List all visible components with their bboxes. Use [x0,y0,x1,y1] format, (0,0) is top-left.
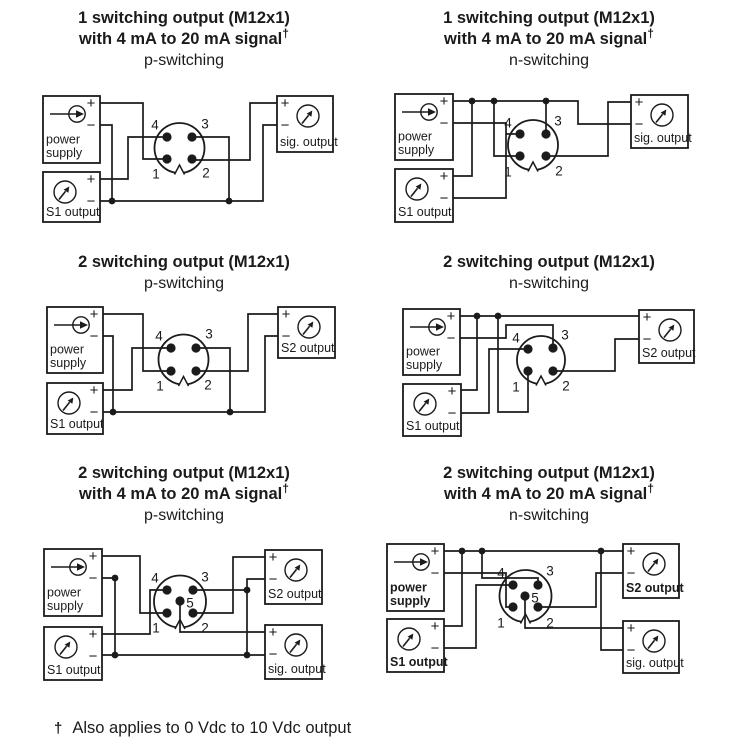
sig-output-box: +−sig. output [623,620,684,673]
box-label: sig. output [280,135,338,149]
pin-1-dot [166,366,175,375]
title-2-switching-signal-p: 2 switching output (M12x1)with 4 mA to 2… [1,463,367,526]
pin-4-dot [162,585,171,594]
pin-3-label: 3 [546,564,554,579]
pin-2-label: 2 [562,379,570,394]
s1-output-box: +−S1 output [43,171,100,222]
pin-2-dot [541,151,550,160]
junction-dot [244,652,251,659]
box-label: power [398,130,432,144]
title-line: 2 switching output (M12x1) [366,252,731,273]
wire [102,578,115,655]
box-label: supply [398,143,435,157]
junction-dot [109,198,116,205]
terminal-plus: + [431,618,440,635]
junction-dot [112,652,119,659]
power-supply-box: +−powersupply [403,308,460,375]
title-2-switching-signal-n: 2 switching output (M12x1)with 4 mA to 2… [366,463,731,526]
terminal-plus: + [89,548,98,565]
pin-3-dot [541,129,550,138]
junction-dot [598,548,605,555]
terminal-plus: + [627,620,636,637]
pin-5-label: 5 [186,596,194,611]
diagram-2-switching-signal-p: 43125+−powersupply+−S1 output+−S2 output… [44,548,326,680]
box-label: supply [50,356,87,370]
terminal-minus: − [269,571,278,588]
terminal-plus: + [87,95,96,112]
pin-5-dot [175,596,184,605]
junction-dot [459,548,466,555]
title-1-switching-signal-p: 1 switching output (M12x1)with 4 mA to 2… [1,8,367,71]
pin-3-label: 3 [561,328,569,343]
pin-4-label: 4 [151,571,159,586]
s1-output-box: +−S1 output [47,382,104,434]
title-line: 1 switching output (M12x1) [1,8,367,29]
sig-output-box: +−sig. output [265,624,326,679]
title-2-switching-n: 2 switching output (M12x1)n-switching [366,252,731,294]
terminal-minus: − [87,117,96,134]
s1-output-box: +−S1 output [387,618,448,672]
s1-output-box: +−S1 output [395,168,453,222]
box-label: sig. output [268,662,326,676]
box-label: S2 output [626,581,684,595]
pin-4-label: 4 [497,566,505,581]
title-line: p-switching [1,273,367,294]
title-line: p-switching [1,50,367,71]
pin-3-dot [191,343,200,352]
sig-output-box: +−sig. output [277,95,338,152]
pin-1-label: 1 [152,621,160,636]
pin-1-label: 1 [512,380,520,395]
dagger-icon: † [647,482,654,496]
terminal-minus: − [90,328,99,345]
pin-2-dot [548,366,557,375]
junction-dot [110,409,117,416]
terminal-plus: + [635,94,644,111]
title-line: 2 switching output (M12x1) [1,252,367,273]
pin-4-label: 4 [504,116,512,131]
title-line: p-switching [1,505,367,526]
terminal-plus: + [90,306,99,323]
diagram-2-switching-signal-n: 43125+−powersupply+−S1 output+−S2 output… [387,543,684,673]
junction-dot [479,548,486,555]
pin-1-label: 1 [497,616,505,631]
pin-1-dot [508,602,517,611]
pin-4-dot [166,343,175,352]
box-label: S1 output [390,655,448,669]
power-supply-box: +−powersupply [43,95,100,163]
pin-1-dot [162,608,171,617]
junction-dot [226,198,233,205]
wire [601,551,623,650]
box-label: sig. output [626,656,684,670]
title-line: 1 switching output (M12x1) [366,8,731,29]
dagger-icon: † [282,482,289,496]
box-label: supply [390,594,430,608]
box-label: supply [406,358,443,372]
pin-1-label: 1 [152,167,160,182]
terminal-minus: − [447,330,456,347]
box-label: S1 output [398,205,452,219]
terminal-plus: + [269,624,278,641]
pin-4-label: 4 [151,118,159,133]
pin-4-label: 4 [155,329,163,344]
box-label: supply [46,146,83,160]
pin-5-dot [520,591,529,600]
junction-dot [491,98,498,105]
junction-dot [474,313,481,320]
junction-dot [469,98,476,105]
pin-3-label: 3 [554,114,562,129]
title-line: with 4 mA to 20 mA signal† [1,484,367,505]
box-label: power [46,133,80,147]
box-label: S1 output [50,417,104,431]
power-supply-box: +−powersupply [387,543,444,611]
junction-dot [495,313,502,320]
title-line: 2 switching output (M12x1) [1,463,367,484]
terminal-plus: + [440,168,449,185]
diagram-1-switching-signal-p: 4312+−powersupply+−S1 output+−sig. outpu… [43,95,338,222]
dagger-icon: † [647,27,654,41]
pin-3-dot [533,580,542,589]
pin-1-label: 1 [504,165,512,180]
terminal-minus: − [89,570,98,587]
terminal-plus: + [281,95,290,112]
title-line: 2 switching output (M12x1) [366,463,731,484]
terminal-plus: + [87,171,96,188]
wire [546,102,631,156]
wire [453,123,506,198]
title-1-switching-signal-n: 1 switching output (M12x1)with 4 mA to 2… [366,8,731,71]
terminal-plus: + [627,543,636,560]
terminal-plus: + [282,306,291,323]
terminal-plus: + [431,543,440,560]
pin-2-label: 2 [201,621,209,636]
title-line: n-switching [366,273,731,294]
junction-dot [112,575,119,582]
box-label: S1 output [47,663,101,677]
wiring-diagrams-canvas: 4312+−powersupply+−S1 output+−sig. outpu… [0,0,731,756]
wire [103,336,113,412]
box-label: S1 output [46,205,100,219]
pin-2-label: 2 [546,616,554,631]
terminal-plus: + [90,382,99,399]
dagger-icon: † [54,720,62,737]
terminal-minus: − [281,117,290,134]
pin-3-dot [187,132,196,141]
terminal-plus: + [269,549,278,566]
pin-4-label: 4 [512,331,520,346]
title-line: with 4 mA to 20 mA signal† [366,29,731,50]
title-line: n-switching [366,505,731,526]
junction-dot [227,409,234,416]
box-label: sig. output [634,131,692,145]
title-2-switching-p: 2 switching output (M12x1)p-switching [1,252,367,294]
terminal-minus: − [440,115,449,132]
pin-3-dot [548,343,557,352]
box-label: power [50,343,84,357]
pin-3-label: 3 [201,570,209,585]
diagram-1-switching-signal-n: 4312+−powersupply+−S1 output+−sig. outpu… [395,93,692,222]
pin-2-dot [191,366,200,375]
wire [460,316,477,390]
footnote-text: Also applies to 0 Vdc to 10 Vdc output [72,719,351,737]
s1-output-box: +−S1 output [403,383,461,436]
pin-1-dot [515,151,524,160]
pin-4-dot [162,132,171,141]
box-label: power [47,586,81,600]
box-label: S2 output [268,587,322,601]
wire [453,101,631,124]
pin-1-dot [523,366,532,375]
wire [453,101,472,176]
pin-4-dot [508,580,517,589]
terminal-plus: + [643,309,652,326]
terminal-minus: − [431,565,440,582]
box-label: power [390,581,427,595]
dagger-icon: † [282,27,289,41]
power-supply-box: +−powersupply [44,548,102,616]
footnote: †Also applies to 0 Vdc to 10 Vdc output [54,719,351,738]
terminal-plus: + [89,626,98,643]
box-label: S1 output [406,419,460,433]
box-label: power [406,345,440,359]
wire [100,125,112,201]
pin-2-label: 2 [202,166,210,181]
pin-3-label: 3 [205,327,213,342]
pin-3-dot [188,585,197,594]
pin-1-label: 1 [156,379,164,394]
wire [553,339,639,371]
diagram-2-switching-p: 4312+−powersupply+−S1 output+−S2 output [47,306,335,434]
title-line: with 4 mA to 20 mA signal† [1,29,367,50]
box-label: supply [47,599,84,613]
terminal-minus: − [269,646,278,663]
pin-2-label: 2 [204,378,212,393]
pin-4-dot [523,344,532,353]
s2-output-box: +−S2 output [623,543,684,598]
pin-2-label: 2 [555,164,563,179]
junction-dot [543,98,550,105]
wiring-diagram-page: 4312+−powersupply+−S1 output+−sig. outpu… [0,0,731,756]
sig-output-box: +−sig. output [631,94,692,148]
terminal-minus: − [627,565,636,582]
diagram-2-switching-n: 4312+−powersupply+−S1 output+−S2 output [403,308,696,436]
pin-4-dot [515,129,524,138]
s1-output-box: +−S1 output [44,626,102,680]
s2-output-box: +−S2 output [278,306,335,358]
s2-output-box: +−S2 output [265,549,322,604]
title-line: with 4 mA to 20 mA signal† [366,484,731,505]
s2-output-box: +−S2 output [639,309,696,363]
pin-5-label: 5 [531,591,539,606]
terminal-plus: + [440,93,449,110]
title-line: n-switching [366,50,731,71]
junction-dot [244,587,251,594]
power-supply-box: +−powersupply [47,306,103,373]
pin-2-dot [187,154,196,163]
power-supply-box: +−powersupply [395,93,453,160]
pin-1-dot [162,154,171,163]
terminal-plus: + [447,308,456,325]
pin-3-label: 3 [201,117,209,132]
wire [444,551,462,626]
terminal-plus: + [448,383,457,400]
box-label: S2 output [642,346,696,360]
box-label: S2 output [281,341,335,355]
